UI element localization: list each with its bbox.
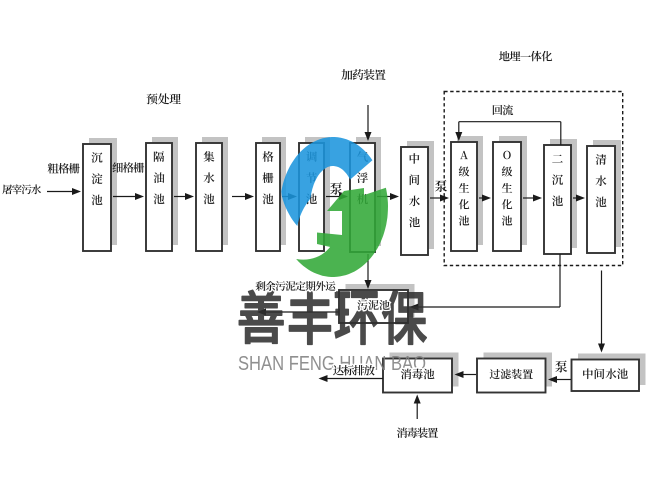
- svg-text:SHAN FENG HUAN BAO: SHAN FENG HUAN BAO: [238, 353, 426, 375]
